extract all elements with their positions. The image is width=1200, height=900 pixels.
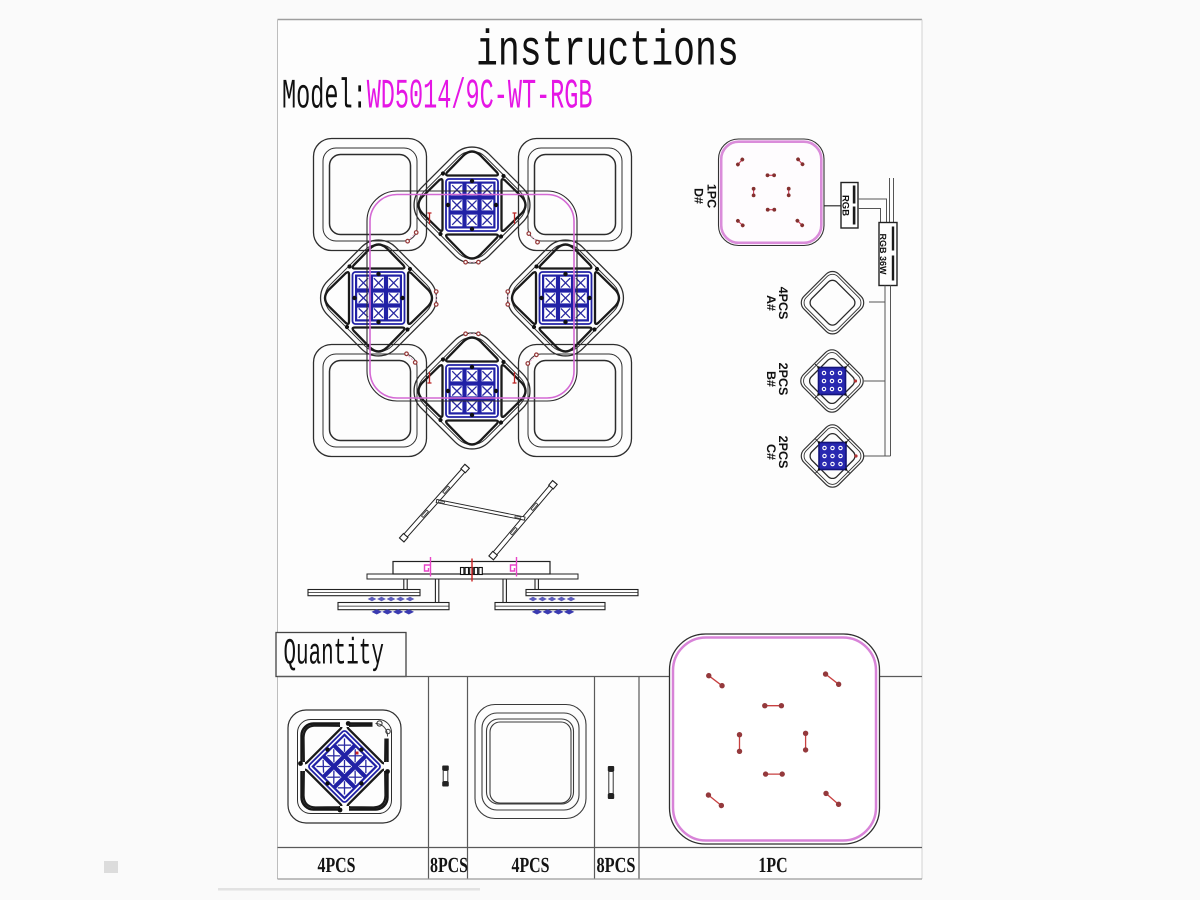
svg-text:Model:WD5014/9C-WT-RGB: Model:WD5014/9C-WT-RGB xyxy=(282,73,593,121)
svg-text:RGB: RGB xyxy=(840,195,851,216)
svg-text:8PCS: 8PCS xyxy=(596,853,635,877)
svg-text:Quantity: Quantity xyxy=(284,634,384,676)
svg-text:C#: C# xyxy=(764,444,778,460)
svg-text:4PCS: 4PCS xyxy=(511,853,549,877)
svg-text:1PC: 1PC xyxy=(705,184,719,208)
svg-text:D#: D# xyxy=(692,188,706,204)
svg-text:4PCS: 4PCS xyxy=(317,853,355,877)
svg-text:1PC: 1PC xyxy=(758,853,787,877)
svg-text:RGB 36W: RGB 36W xyxy=(878,233,888,275)
svg-text:A#: A# xyxy=(764,295,778,311)
svg-text:B#: B# xyxy=(764,371,778,387)
svg-text:8PCS: 8PCS xyxy=(430,853,468,877)
